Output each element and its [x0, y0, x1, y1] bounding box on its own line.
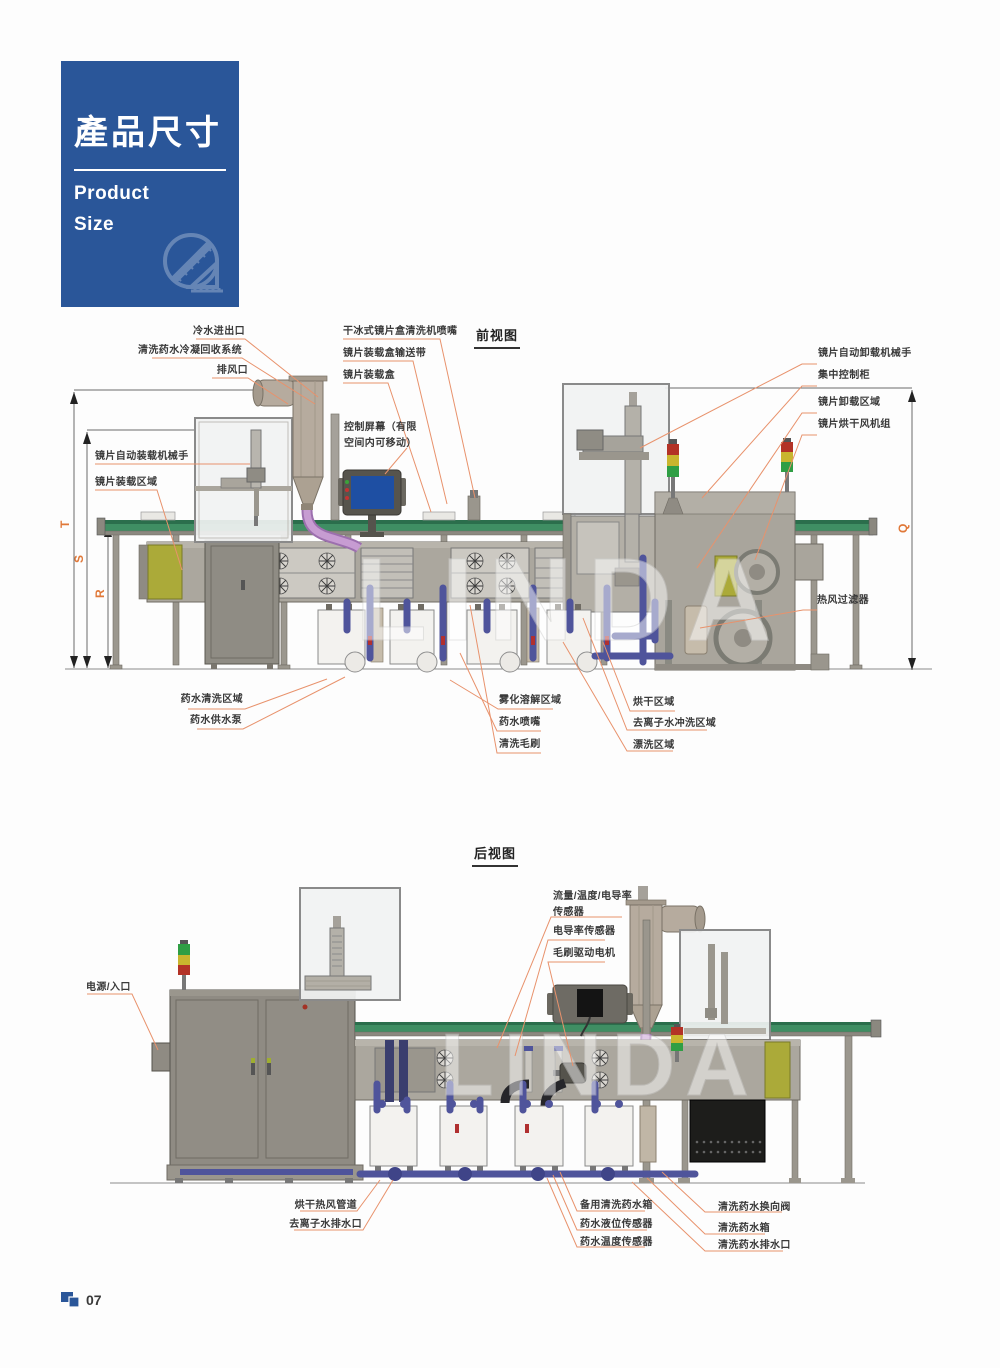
callout-drying-area: 烘干区域 — [633, 695, 675, 711]
subtitle-line-1: Product — [74, 183, 239, 205]
callout-fluid-nozzle: 药水喷嘴 — [499, 715, 541, 731]
callout-atomization-area: 雾化溶解区域 — [499, 693, 561, 709]
callout-lens-auto-unloading-robot: 镜片自动卸载机械手 — [818, 346, 912, 362]
svg-text:S: S — [72, 555, 86, 563]
title-divider — [74, 169, 226, 171]
callout-fluid-temp-sensor: 药水温度传感器 — [580, 1235, 653, 1251]
callout-cleaning-fluid-diverter-valve: 清洗药水换向阀 — [718, 1200, 791, 1216]
rear-upper-enclosure — [300, 888, 400, 1000]
callout-conductivity-sensor: 电导率传感器 — [553, 924, 615, 940]
callout-power-inlet: 电源/入口 — [86, 980, 131, 996]
callout-lens-auto-loading-robot: 镜片自动装载机械手 — [95, 449, 189, 465]
callout-dry-ice-nozzle: 干冰式镜片盒清洗机喷嘴 — [343, 324, 457, 340]
callout-cleaning-fluid-drain: 清洗药水排水口 — [718, 1238, 791, 1254]
rear-watermark: LINDA — [440, 1015, 759, 1114]
callout-cleaning-brush: 清洗毛刷 — [499, 737, 541, 753]
callout-exhaust-port: 排风口 — [217, 363, 248, 379]
page-number-icon — [61, 1292, 80, 1308]
svg-text:T: T — [58, 520, 72, 528]
page-title: 產品尺寸 — [74, 105, 239, 154]
left-cabinet — [205, 540, 279, 669]
callout-control-screen: 控制屏幕（有限 空间内可移动） — [344, 420, 417, 452]
lens-loading-enclosure — [195, 418, 292, 542]
callout-drying-hot-air-duct: 烘干热风管道 — [295, 1198, 357, 1214]
callout-cleaning-fluid-tank: 清洗药水箱 — [718, 1221, 770, 1237]
rear-signal-tower — [178, 940, 190, 990]
callout-cold-water-inlet-outlet: 冷水进出口 — [193, 324, 245, 340]
callout-lens-box-conveyor: 镜片装载盒输送带 — [343, 346, 426, 362]
callout-lens-loading-box: 镜片装载盒 — [343, 368, 395, 384]
ruler-set-square-icon — [157, 225, 231, 299]
callout-backup-cleaning-fluid-tank: 备用清洗药水箱 — [580, 1198, 653, 1214]
callout-rinse-area: 漂洗区域 — [633, 738, 675, 754]
callout-central-control-cabinet: 集中控制柜 — [818, 368, 870, 384]
callout-flow-temp-conductivity-sensor: 流量/温度/电导率 传感器 — [553, 889, 632, 921]
page-number: 07 — [86, 1292, 102, 1308]
rear-view-drawing: LINDA — [55, 858, 945, 1258]
callout-fluid-supply-pump: 药水供水泵 — [190, 713, 242, 729]
callout-di-water-rinse-area: 去离子水冲洗区域 — [633, 716, 716, 732]
power-inlet-box — [152, 1043, 170, 1071]
callout-brush-drive-motor: 毛刷驱动电机 — [553, 946, 615, 962]
svg-text:Q: Q — [896, 524, 910, 533]
callout-hot-air-filter: 热风过滤器 — [817, 593, 869, 609]
callout-lens-unloading-area: 镜片卸载区域 — [818, 395, 880, 411]
svg-text:R: R — [93, 589, 107, 598]
front-watermark: LINDA — [355, 534, 786, 666]
front-view-drawing: LINDA T — [55, 318, 945, 778]
rear-cabinet — [152, 990, 363, 1183]
callout-fluid-level-sensor: 药水液位传感器 — [580, 1217, 653, 1233]
catalog-page: 產品尺寸 Product Size 前视图 — [0, 0, 1000, 1368]
callout-fluid-cleaning-area: 药水清洗区域 — [181, 692, 243, 708]
brand-card: 產品尺寸 Product Size — [61, 61, 239, 307]
callout-condensate-recovery: 清洗药水冷凝回收系统 — [138, 343, 242, 359]
callout-lens-drying-fan-unit: 镜片烘干风机组 — [818, 417, 891, 433]
callout-di-water-drain: 去离子水排水口 — [289, 1217, 362, 1233]
page-footer: 07 — [61, 1292, 102, 1308]
callout-lens-loading-area: 镜片装载区域 — [95, 475, 157, 491]
